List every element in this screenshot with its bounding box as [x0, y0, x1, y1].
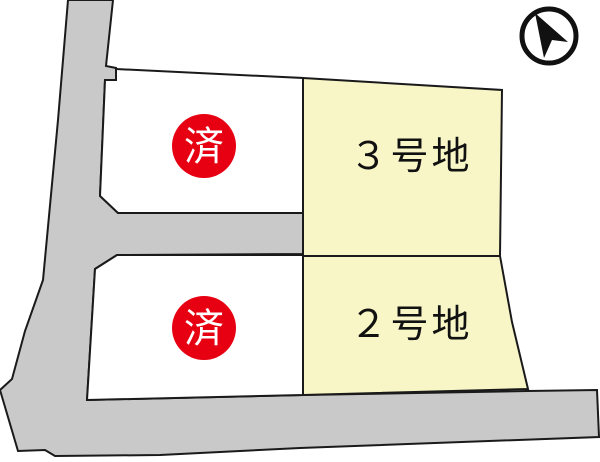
lot-2-label: ２号地	[349, 302, 472, 346]
lot-map: ３号地 ２号地 済 済	[0, 0, 600, 462]
lot-3-label: ３号地	[349, 134, 472, 178]
sold-badge-lower: 済	[172, 296, 236, 360]
sold-badge-text: 済	[184, 124, 224, 170]
sold-badge-text: 済	[184, 306, 224, 352]
north-arrow-icon	[522, 9, 576, 63]
sold-badge-upper: 済	[172, 114, 236, 178]
